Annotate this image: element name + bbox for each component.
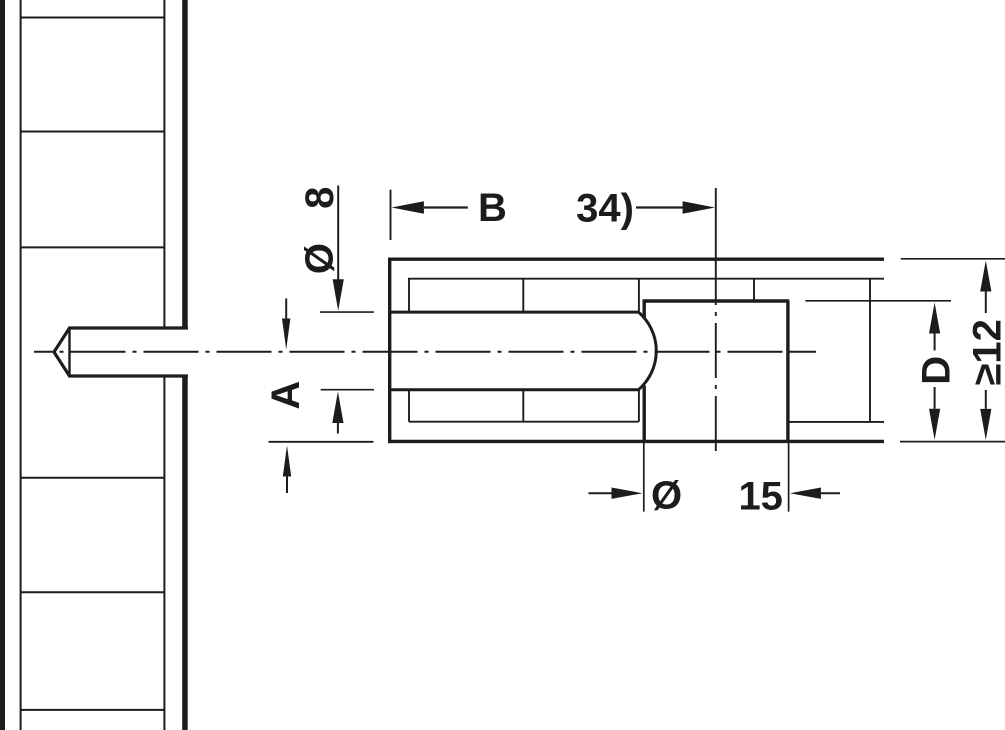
- svg-text:D: D: [915, 356, 959, 385]
- svg-text:Ø: Ø: [298, 243, 342, 274]
- svg-text:B: B: [478, 186, 507, 230]
- svg-text:A: A: [264, 381, 308, 410]
- svg-text:≥12: ≥12: [966, 319, 1005, 385]
- svg-text:34): 34): [576, 186, 634, 230]
- svg-text:Ø: Ø: [651, 474, 682, 518]
- svg-text:8: 8: [298, 187, 342, 209]
- svg-text:15: 15: [738, 475, 783, 519]
